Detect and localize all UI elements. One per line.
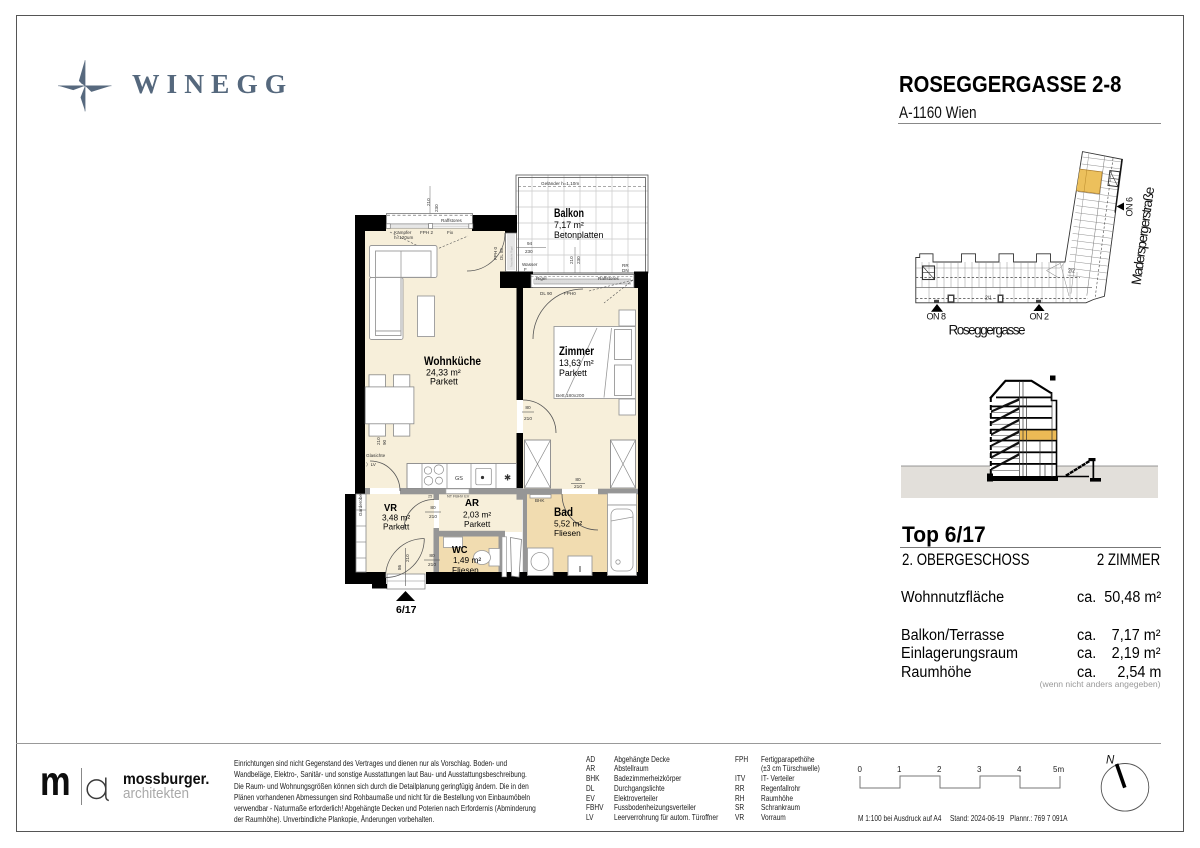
svg-text:✱: ✱ <box>504 473 511 483</box>
svg-text:210: 210 <box>524 416 532 422</box>
svg-text:210: 210 <box>429 514 437 520</box>
svg-text:ON 8: ON 8 <box>927 312 947 322</box>
svg-text:210: 210 <box>376 437 381 445</box>
svg-text:Raffstores: Raffstores <box>441 218 463 223</box>
svg-text:2: 2 <box>937 765 942 774</box>
svg-text:ON 2: ON 2 <box>1030 312 1050 322</box>
svg-text:DL 90: DL 90 <box>540 291 553 296</box>
svg-text:DL 85: DL 85 <box>499 247 504 260</box>
svg-text:80: 80 <box>525 405 531 411</box>
svg-text:3: 3 <box>977 765 982 774</box>
svg-text:80: 80 <box>575 477 581 483</box>
svg-text:AR: AR <box>465 497 479 509</box>
svg-text:N: N <box>1106 755 1115 767</box>
svg-text:FPH 2: FPH 2 <box>420 230 433 235</box>
svg-text:Parkett: Parkett <box>430 377 458 387</box>
svg-text:〉LV: 〉LV <box>366 462 377 467</box>
svg-text:210: 210 <box>428 562 436 568</box>
svg-text:Geländer h=1,10m: Geländer h=1,10m <box>541 181 579 186</box>
svg-text:Fix: Fix <box>447 230 454 235</box>
svg-text:Glasichte: Glasichte <box>366 453 386 458</box>
svg-text:1,49 m²: 1,49 m² <box>453 555 481 565</box>
svg-text:210: 210 <box>426 198 431 206</box>
svg-text:Nachtlicht Rigel: Nachtlicht Rigel <box>510 246 514 267</box>
svg-text:FPH0: FPH0 <box>564 291 576 296</box>
svg-text:230: 230 <box>434 204 439 212</box>
svg-text:2/1: 2/1 <box>985 296 992 302</box>
svg-text:Zimmer: Zimmer <box>559 344 594 358</box>
svg-text:F: F <box>524 267 527 272</box>
svg-text:230: 230 <box>576 256 581 264</box>
svg-text:Balkon: Balkon <box>554 208 584 220</box>
svg-text:7,17 m²: 7,17 m² <box>554 220 584 230</box>
svg-text:80: 80 <box>429 553 435 559</box>
svg-text:Wohnküche: Wohnküche <box>424 354 481 368</box>
svg-text:DN: DN <box>622 268 629 273</box>
svg-text:2/2: 2/2 <box>1068 269 1075 275</box>
svg-text:GS: GS <box>455 476 463 482</box>
svg-text:210: 210 <box>405 554 410 562</box>
svg-text:25: 25 <box>428 495 432 499</box>
svg-text:2,03 m²: 2,03 m² <box>463 510 491 520</box>
svg-text:Bett 180x200: Bett 180x200 <box>556 393 585 399</box>
svg-text:h=120um: h=120um <box>394 235 413 240</box>
svg-text:4: 4 <box>1017 765 1022 774</box>
svg-text:13,63 m²: 13,63 m² <box>559 358 594 368</box>
svg-text:ON 6: ON 6 <box>1125 197 1135 217</box>
svg-text:Fliesen: Fliesen <box>452 565 479 575</box>
svg-text:Fliesen: Fliesen <box>554 528 581 538</box>
svg-text:Bad: Bad <box>554 507 573 519</box>
svg-text:5m: 5m <box>1053 765 1064 774</box>
svg-text:94: 94 <box>527 241 533 246</box>
svg-text:5,52 m²: 5,52 m² <box>554 519 582 529</box>
svg-text:Parkett: Parkett <box>464 519 491 529</box>
svg-text:90: 90 <box>382 439 387 445</box>
svg-text:Betonplatten: Betonplatten <box>554 230 604 240</box>
svg-text:BHK: BHK <box>535 498 545 503</box>
svg-text:Parkett: Parkett <box>559 368 587 378</box>
svg-text:Garderobe: Garderobe <box>358 494 363 516</box>
svg-text:Raffstores: Raffstores <box>598 276 620 281</box>
svg-text:Parkett: Parkett <box>383 522 410 532</box>
svg-text:FPH 0: FPH 0 <box>493 247 498 260</box>
svg-text:Rigel: Rigel <box>536 276 546 281</box>
svg-text:1: 1 <box>897 765 902 774</box>
svg-text:0: 0 <box>858 765 863 774</box>
svg-text:6/17: 6/17 <box>396 604 417 616</box>
svg-text:86: 86 <box>397 564 402 570</box>
svg-text:Roseggergasse: Roseggergasse <box>949 323 1026 338</box>
svg-text:210: 210 <box>569 256 574 264</box>
svg-text:80: 80 <box>430 505 436 511</box>
svg-text:210: 210 <box>574 484 582 490</box>
svg-text:230: 230 <box>525 249 533 254</box>
